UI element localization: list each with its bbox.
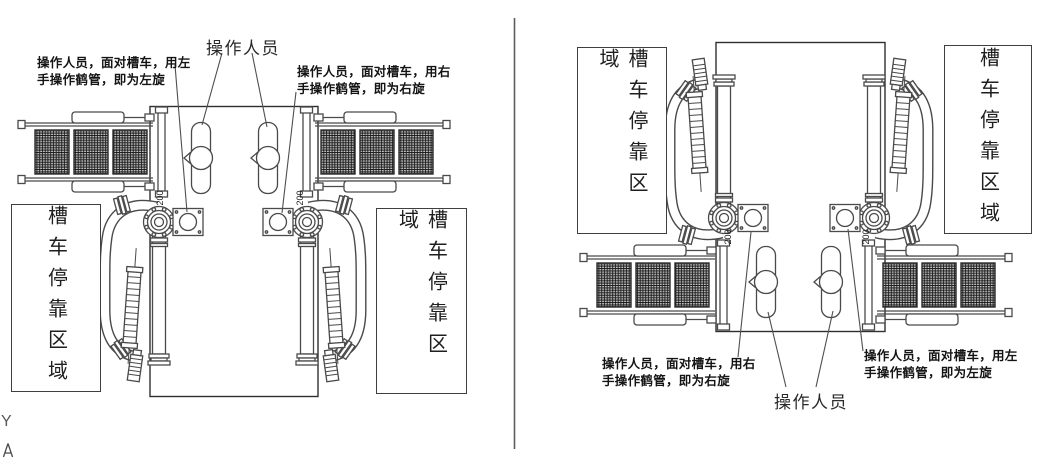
left-view-note-left-line2: 手操作鹤管，即为左旋 [37,72,165,89]
right-view-dim-left: 200 [723,224,733,250]
y-axis-label: Y [1,413,12,431]
right-view-note-left-line1: 操作人员，面对槽车，用右 [602,356,756,373]
loading-arm [105,195,203,382]
loading-arm [830,58,928,245]
loading-bay-outline [150,107,318,397]
right-view-note-right-line1: 操作人员，面对槽车，用左 [864,348,1018,365]
parking-zone-label: 槽车停靠区域 [974,47,1003,233]
left-view-note-left-line1: 操作人员，面对槽车，用左 [37,55,191,72]
operator-figure [749,247,778,318]
left-view-note-right-line1: 操作人员，面对槽车，用右 [297,64,451,81]
left-view-dim-left: 200 [155,185,165,211]
right-view-note-left-line2: 手操作鹤管，即为右旋 [602,373,730,390]
parking-zone-label: 槽车停靠区域 [393,209,451,393]
operator-figure [814,247,843,318]
left-view-note-right-line2: 手操作鹤管，即为右旋 [297,81,425,98]
operator-figure [251,123,280,194]
right-view-parking-zone-left: 槽车停靠区域 [577,47,667,234]
right-view-note-right-line2: 手操作鹤管，即为左旋 [864,365,992,382]
loading-arm [670,58,768,245]
loading-arm [263,195,361,382]
drawing-canvas: 操作人员 操作人员，面对槽车，用左 手操作鹤管，即为左旋 操作人员，面对槽车，用… [0,0,1046,457]
left-view-parking-zone-right: 槽车停靠区域 [376,208,467,394]
right-view-dim-right: 200 [861,224,871,250]
gangway-platform [580,240,730,330]
left-view-parking-zone-left: 槽车停靠区域 [11,204,101,392]
loading-bay-outline [716,43,885,332]
right-view-operator-label: 操作人员 [774,388,848,413]
parking-zone-label: 槽车停靠区域 [42,205,71,391]
left-view-dim-right: 200 [295,185,305,211]
gangway-platform [18,107,168,197]
right-view-parking-zone-right: 槽车停靠区域 [944,45,1032,234]
y-axis-arrow-icon [4,444,13,457]
gangway-platform [863,240,1013,330]
parking-zone-label: 槽车停靠区域 [593,48,651,233]
left-view-operator-label: 操作人员 [206,34,280,59]
operator-figure [184,123,213,194]
gangway-platform [301,107,451,197]
